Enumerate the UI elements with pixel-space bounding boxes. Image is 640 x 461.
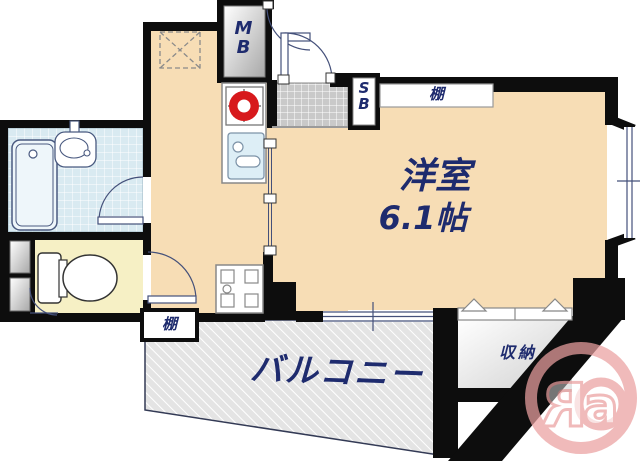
shoe-box-letter-b: B xyxy=(351,97,377,113)
room-size-label: 6.1帖 xyxy=(318,202,528,236)
shoe-box-label: SB xyxy=(351,81,377,113)
sink-faucet xyxy=(233,142,243,152)
floor-plan: R a MB SB 棚 洋室 6.1帖 バルコニー 収納 棚 xyxy=(0,0,640,461)
room-name-label: 洋室 xyxy=(330,158,540,196)
balcony-label: バルコニー xyxy=(211,351,462,394)
meter-box-label: MB xyxy=(222,20,266,58)
entrance-door-swing xyxy=(263,1,335,84)
logo-letter-r: R xyxy=(541,371,587,441)
logo-letter-a: a xyxy=(583,377,618,437)
shelf-top-label: 棚 xyxy=(380,87,493,103)
shelf-bottom-label: 棚 xyxy=(146,317,193,333)
entrance-tile xyxy=(272,83,348,127)
washing-machine-pan xyxy=(216,265,263,313)
bay-window xyxy=(617,127,640,238)
meter-box-letter-b: B xyxy=(222,39,266,58)
pipe-space-lower xyxy=(10,278,30,311)
storage-label: 収納 xyxy=(468,345,568,362)
pipe-space-upper xyxy=(10,241,30,273)
